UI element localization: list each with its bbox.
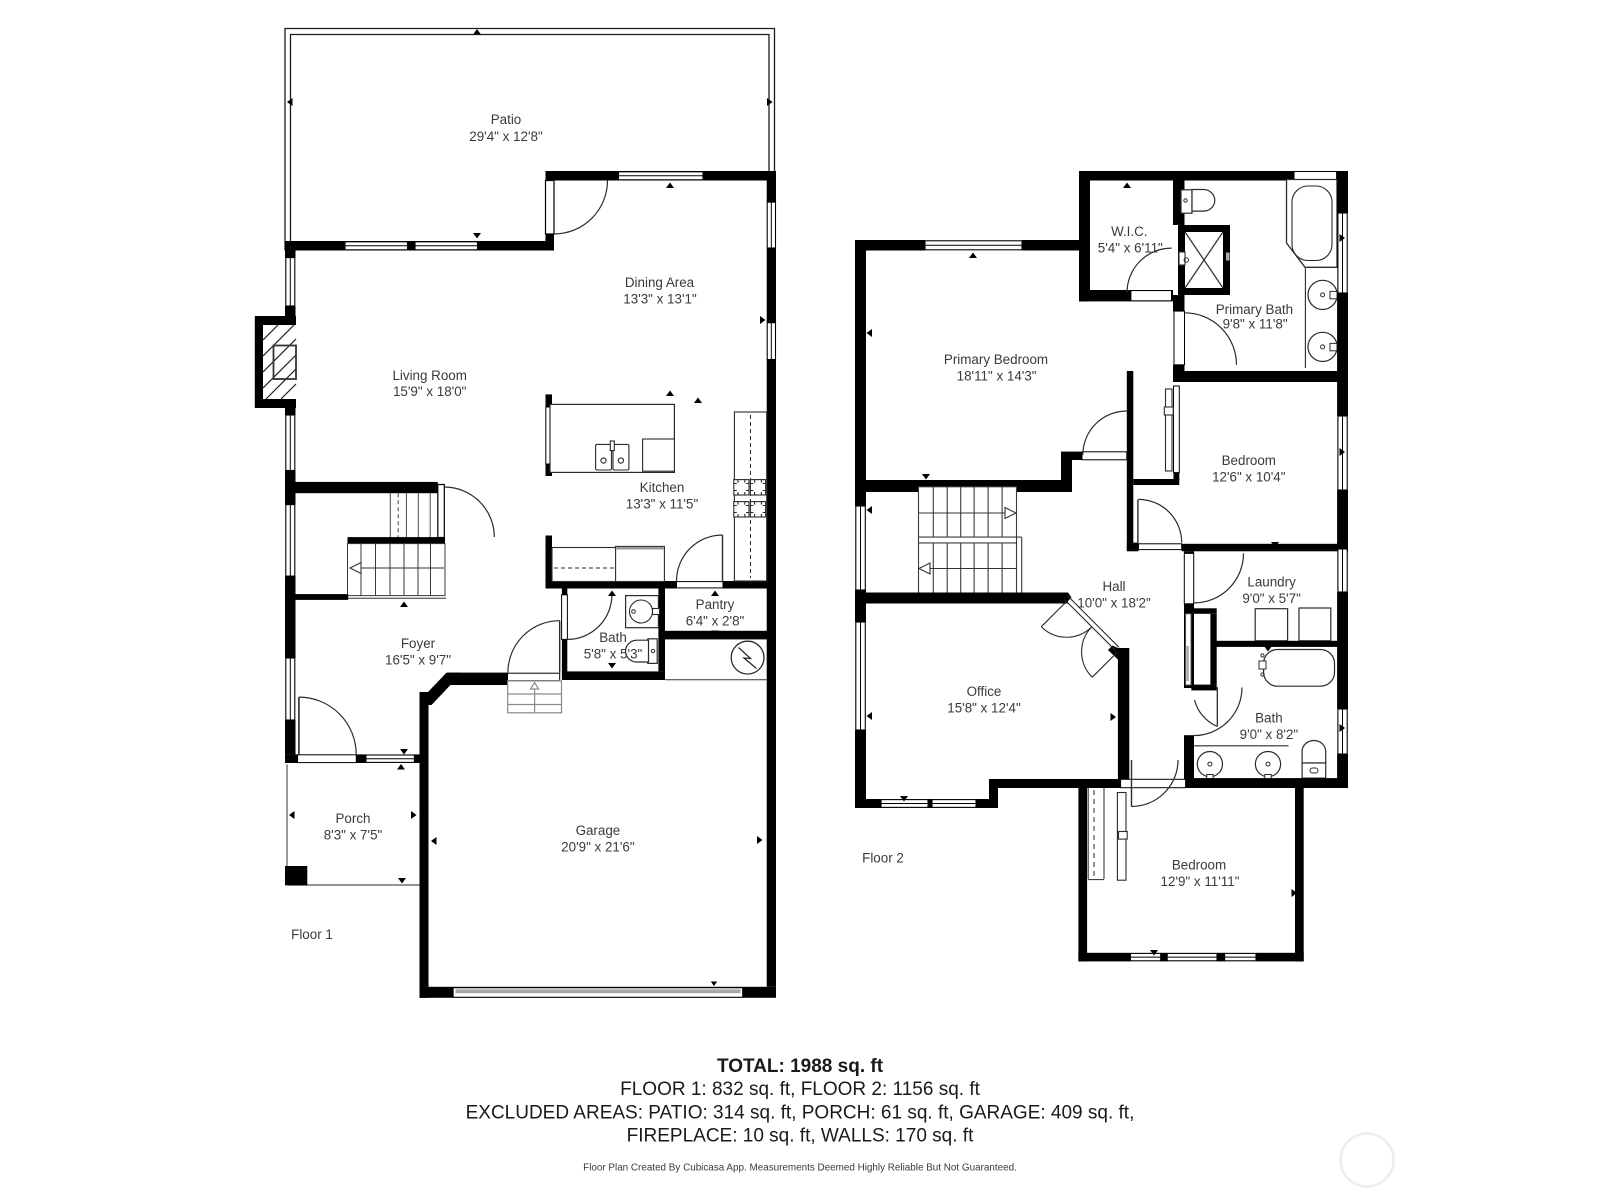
- svg-text:20'9" x 21'6": 20'9" x 21'6": [561, 840, 635, 855]
- svg-text:8'3" x 7'5": 8'3" x 7'5": [324, 828, 383, 843]
- svg-text:Bedroom: Bedroom: [1172, 858, 1226, 873]
- svg-text:W.I.C.: W.I.C.: [1111, 224, 1147, 239]
- svg-text:EXCLUDED AREAS: PATIO: 314 sq.: EXCLUDED AREAS: PATIO: 314 sq. ft, PORCH…: [466, 1103, 1135, 1124]
- svg-text:Office: Office: [967, 684, 1002, 699]
- svg-text:Bath: Bath: [599, 630, 627, 645]
- svg-text:Floor Plan Created By Cubicasa: Floor Plan Created By Cubicasa App. Meas…: [583, 1163, 1017, 1174]
- svg-text:Hall: Hall: [1102, 579, 1125, 594]
- svg-text:5'8" x 5'3": 5'8" x 5'3": [584, 647, 643, 662]
- svg-text:12'9" x 11'11": 12'9" x 11'11": [1161, 874, 1240, 889]
- svg-text:Floor 1: Floor 1: [291, 927, 333, 942]
- svg-text:Laundry: Laundry: [1247, 575, 1296, 590]
- svg-text:Patio: Patio: [491, 112, 522, 127]
- svg-text:Living Room: Living Room: [392, 368, 466, 383]
- svg-text:16'5" x 9'7": 16'5" x 9'7": [385, 653, 451, 668]
- svg-text:6'4" x 2'8": 6'4" x 2'8": [686, 614, 745, 629]
- svg-text:TOTAL: 1988 sq. ft: TOTAL: 1988 sq. ft: [717, 1056, 884, 1077]
- svg-text:29'4" x 12'8": 29'4" x 12'8": [469, 129, 543, 144]
- svg-text:Pantry: Pantry: [696, 597, 735, 612]
- svg-text:5'4" x 6'11": 5'4" x 6'11": [1098, 241, 1163, 256]
- svg-text:Porch: Porch: [336, 811, 371, 826]
- svg-text:Primary Bedroom: Primary Bedroom: [944, 352, 1048, 367]
- svg-text:Foyer: Foyer: [401, 636, 436, 651]
- svg-text:9'8" x 11'8": 9'8" x 11'8": [1223, 317, 1288, 332]
- svg-text:13'3" x 11'5": 13'3" x 11'5": [626, 497, 699, 512]
- svg-text:12'6" x 10'4": 12'6" x 10'4": [1212, 469, 1286, 484]
- svg-text:Floor 2: Floor 2: [862, 851, 904, 866]
- svg-text:15'9" x 18'0": 15'9" x 18'0": [393, 384, 467, 399]
- svg-text:15'8" x 12'4": 15'8" x 12'4": [947, 701, 1021, 716]
- svg-text:Primary Bath: Primary Bath: [1216, 302, 1293, 317]
- svg-text:Garage: Garage: [576, 823, 621, 838]
- svg-text:9'0" x 8'2": 9'0" x 8'2": [1240, 727, 1299, 742]
- svg-text:18'11" x 14'3": 18'11" x 14'3": [957, 369, 1037, 384]
- svg-text:Bath: Bath: [1255, 710, 1283, 725]
- svg-text:Kitchen: Kitchen: [640, 480, 685, 495]
- svg-text:10'0" x 18'2": 10'0" x 18'2": [1077, 596, 1151, 611]
- svg-text:Bedroom: Bedroom: [1222, 453, 1276, 468]
- svg-text:13'3" x 13'1": 13'3" x 13'1": [623, 292, 697, 307]
- svg-text:9'0" x 5'7": 9'0" x 5'7": [1242, 591, 1301, 606]
- svg-text:FLOOR 1: 832 sq. ft, FLOOR 2:: FLOOR 1: 832 sq. ft, FLOOR 2: 1156 sq. f…: [620, 1079, 980, 1100]
- svg-text:Dining Area: Dining Area: [625, 275, 695, 290]
- svg-text:FIREPLACE: 10 sq. ft, WALLS: 1: FIREPLACE: 10 sq. ft, WALLS: 170 sq. ft: [627, 1126, 974, 1147]
